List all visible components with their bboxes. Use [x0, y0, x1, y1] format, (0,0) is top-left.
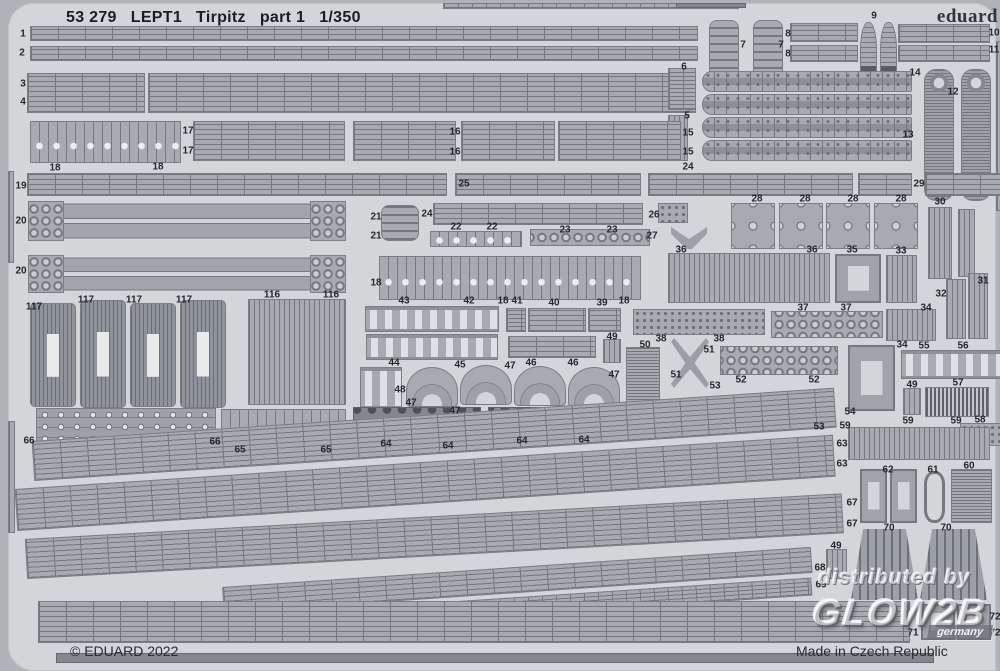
part-number-label: 28: [751, 194, 762, 205]
part-number-label: 54: [844, 407, 855, 418]
part-number-label: 64: [442, 441, 453, 452]
pe-part-shape: [28, 255, 64, 293]
pe-part-shape: [702, 117, 912, 138]
part-number-label: 60: [963, 461, 974, 472]
pe-part-shape: [28, 255, 346, 293]
part-number-label: 47: [449, 406, 460, 417]
pe-part-shape: [898, 45, 990, 62]
part-number-label: 23: [559, 225, 570, 236]
pe-part-shape: [658, 203, 688, 223]
part-number-label: 16: [449, 127, 460, 138]
part-number-label: 21: [370, 212, 381, 223]
part-number-label: 28: [799, 194, 810, 205]
part-number-label: 52: [808, 375, 819, 386]
part-number-label: 49: [606, 332, 617, 343]
scale-label: 1/350: [319, 9, 361, 26]
part-number-label: 72: [989, 628, 1000, 639]
part-number-label: 20: [15, 216, 26, 227]
pe-part-shape: [668, 68, 696, 110]
part-number-label: 65: [234, 445, 245, 456]
part-number-label: 3: [20, 79, 26, 90]
part-number-label: 56: [957, 341, 968, 352]
pe-part-shape: [676, 3, 746, 8]
part-number-label: 26: [648, 210, 659, 221]
part-number-label: 25: [458, 179, 469, 190]
pe-part-shape: [506, 308, 526, 332]
pe-part-shape: [702, 94, 912, 115]
pe-part-shape: [951, 469, 992, 523]
part-number-label: 33: [895, 246, 906, 257]
pe-part-shape: [558, 121, 681, 161]
pe-part-shape: [433, 203, 643, 225]
pe-part-shape: [874, 203, 918, 249]
eduard-logo: eduard: [906, 6, 998, 28]
part-number-label: 6: [681, 62, 687, 73]
part-number-label: 32: [935, 289, 946, 300]
pe-part-shape: [826, 549, 847, 579]
part-number-label: 2: [19, 48, 25, 59]
part-number-label: 117: [26, 302, 42, 313]
part-number-label: 61: [927, 465, 938, 476]
part-number-label: 117: [176, 295, 192, 306]
part-number-label: 22: [486, 222, 497, 233]
part-number-label: 20: [15, 266, 26, 277]
part-number-label: 57: [952, 378, 963, 389]
parts-layer: 1234181817171616151565778891011141213192…: [8, 3, 996, 671]
pe-part-shape: [702, 71, 912, 92]
part-number-label: 11: [989, 45, 1000, 56]
pe-part-shape: [193, 121, 345, 161]
part-number-label: 21: [370, 231, 381, 242]
part-number-label: 64: [516, 436, 527, 447]
part-number-label: 41: [511, 296, 522, 307]
pe-part-shape: [771, 311, 883, 338]
part-number-label: 55: [918, 341, 929, 352]
part-number-label: 40: [548, 298, 559, 309]
plate-code: LEPT1: [131, 9, 182, 26]
part-number-label: 62: [882, 465, 893, 476]
pe-part-shape: [901, 350, 1000, 379]
pe-part-shape: [946, 279, 966, 339]
part-number-label: 69: [815, 580, 826, 591]
part-number-label: 37: [840, 303, 851, 314]
part-number-label: 29: [913, 179, 924, 190]
part-number-label: 49: [830, 541, 841, 552]
pe-part-shape: [921, 604, 955, 640]
part-number-label: 44: [388, 358, 399, 369]
pe-part-shape: [702, 140, 912, 161]
part-number-label: 66: [209, 437, 220, 448]
pe-part-shape: [848, 345, 895, 411]
pe-part-shape: [8, 171, 14, 263]
part-number-label: 51: [703, 345, 714, 356]
pe-part-shape: [886, 309, 936, 341]
pe-part-shape: [30, 121, 181, 163]
part-number-label: 22: [450, 222, 461, 233]
part-number-label: 46: [525, 358, 536, 369]
pe-part-shape: [668, 253, 830, 303]
pe-part-shape: [779, 203, 823, 249]
part-number-label: 7: [740, 40, 746, 51]
pe-part-shape: [924, 471, 945, 523]
copyright-notice: © EDUARD 2022: [70, 643, 178, 659]
part-number-label: 30: [934, 197, 945, 208]
part-number-label: 18: [49, 163, 60, 174]
part-number-label: 70: [883, 523, 894, 534]
part-number-label: 53: [709, 381, 720, 392]
part-number-label: 16: [449, 147, 460, 158]
part-number-label: 59: [950, 416, 961, 427]
pe-part-shape: [366, 334, 498, 360]
part-number-label: 38: [713, 334, 724, 345]
pe-part-shape: [28, 201, 64, 241]
part-number-label: 49: [906, 380, 917, 391]
part-number-label: 24: [421, 209, 432, 220]
pe-part-shape: [455, 173, 641, 196]
pe-part-shape: [928, 207, 952, 279]
part-label: part 1: [260, 9, 305, 26]
part-number-label: 43: [398, 296, 409, 307]
pe-part-shape: [461, 121, 555, 161]
part-number-label: 116: [323, 290, 339, 301]
part-number-label: 35: [846, 245, 857, 256]
part-number-label: 10: [988, 28, 999, 39]
part-number-label: 59: [839, 421, 850, 432]
part-number-label: 8: [785, 49, 791, 60]
pe-part-shape: [353, 121, 456, 161]
part-number-label: 71: [907, 628, 918, 639]
part-number-label: 14: [909, 68, 920, 79]
sheet-header: 53 279LEPT1Tirpitzpart 11/350: [66, 9, 375, 27]
pe-part-shape: [28, 201, 346, 241]
pe-part-shape: [588, 308, 621, 332]
part-number-label: 52: [735, 375, 746, 386]
pe-part-shape: [430, 231, 522, 247]
part-number-label: 45: [454, 360, 465, 371]
part-number-label: 36: [675, 245, 686, 256]
part-number-label: 50: [639, 340, 650, 351]
part-number-label: 47: [504, 361, 515, 372]
part-number-label: 18: [370, 278, 381, 289]
pe-part-shape: [890, 469, 917, 523]
part-number-label: 28: [847, 194, 858, 205]
part-number-label: 18: [618, 296, 629, 307]
pe-part-shape: [925, 387, 989, 417]
part-number-label: 27: [646, 231, 657, 242]
part-number-label: 13: [902, 130, 913, 141]
part-number-label: 23: [606, 225, 617, 236]
pe-part-shape: [848, 427, 990, 460]
part-number-label: 31: [977, 276, 988, 287]
pe-part-shape: [925, 173, 1000, 196]
part-number-label: 12: [947, 87, 958, 98]
part-number-label: 64: [578, 435, 589, 446]
part-number-label: 68: [814, 563, 825, 574]
part-number-label: 70: [940, 523, 951, 534]
part-number-label: 48: [394, 385, 405, 396]
pe-part-shape: [30, 26, 698, 41]
part-number-label: 37: [797, 303, 808, 314]
part-number-label: 46: [567, 358, 578, 369]
pe-part-shape: [30, 46, 698, 61]
part-number-label: 4: [20, 97, 26, 108]
part-number-label: 117: [126, 295, 142, 306]
kit-name: Tirpitz: [196, 9, 246, 26]
part-number-label: 7: [778, 40, 784, 51]
part-number-label: 42: [463, 296, 474, 307]
part-number-label: 65: [320, 445, 331, 456]
pe-part-shape: [130, 303, 176, 407]
pe-part-shape: [958, 209, 975, 277]
part-number-label: 18: [497, 296, 508, 307]
pe-part-shape: [27, 173, 447, 196]
pe-fret-sheet: 1234181817171616151565778891011141213192…: [8, 3, 996, 671]
part-number-label: 17: [182, 146, 193, 157]
pe-part-shape: [379, 256, 641, 300]
pe-part-shape: [790, 23, 858, 42]
catalog-number: 53 279: [66, 9, 117, 26]
pe-part-shape: [148, 73, 696, 113]
part-number-label: 67: [846, 519, 857, 530]
part-number-label: 117: [78, 295, 94, 306]
pe-part-shape: [528, 308, 586, 332]
pe-part-shape: [835, 254, 881, 303]
part-number-label: 8: [785, 29, 791, 40]
pe-part-shape: [38, 601, 910, 643]
part-number-label: 1: [20, 29, 26, 40]
pe-part-shape: [310, 201, 346, 241]
part-number-label: 18: [152, 162, 163, 173]
part-number-label: 64: [380, 439, 391, 450]
pe-part-shape: [80, 300, 126, 408]
pe-part-shape: [514, 366, 566, 406]
part-number-label: 34: [896, 340, 907, 351]
pe-part-shape: [903, 388, 921, 415]
pe-part-shape: [860, 469, 887, 523]
pe-part-shape: [826, 203, 870, 249]
part-number-label: 72: [989, 612, 1000, 623]
pe-part-shape: [365, 306, 499, 332]
part-number-label: 67: [846, 498, 857, 509]
pe-part-shape: [790, 45, 858, 62]
part-number-label: 63: [836, 439, 847, 450]
pe-part-shape: [886, 255, 917, 303]
made-in-label: Made in Czech Republic: [796, 643, 996, 659]
part-number-label: 38: [655, 334, 666, 345]
pe-part-shape: [8, 421, 15, 533]
part-number-label: 66: [23, 436, 34, 447]
part-number-label: 59: [902, 416, 913, 427]
pe-part-shape: [508, 336, 596, 358]
pe-part-shape: [530, 229, 650, 246]
pe-part-shape: [920, 529, 987, 600]
part-number-label: 47: [608, 370, 619, 381]
part-number-label: 36: [806, 245, 817, 256]
pe-part-shape: [180, 300, 226, 408]
part-number-label: 17: [182, 126, 193, 137]
part-number-label: 34: [920, 303, 931, 314]
pe-part-shape: [709, 20, 739, 78]
pe-part-shape: [27, 73, 145, 113]
part-number-label: 19: [15, 181, 26, 192]
part-number-label: 5: [684, 111, 690, 122]
pe-part-shape: [30, 303, 76, 407]
pe-part-shape: [633, 309, 765, 335]
part-number-label: 28: [895, 194, 906, 205]
pe-part-shape: [248, 299, 346, 405]
pe-part-shape: [720, 346, 838, 375]
part-number-label: 15: [682, 147, 693, 158]
pe-part-shape: [310, 255, 346, 293]
page-root: { "header": { "catalog_number": "53 279"…: [0, 0, 1000, 662]
pe-part-shape: [731, 203, 775, 249]
part-number-label: 15: [682, 128, 693, 139]
part-number-label: 53: [813, 422, 824, 433]
part-number-label: 63: [836, 459, 847, 470]
pe-part-shape: [851, 529, 918, 600]
part-number-label: 9: [871, 11, 877, 22]
pe-part-shape: [603, 339, 621, 363]
pe-part-shape: [381, 205, 419, 241]
part-number-label: 39: [596, 298, 607, 309]
part-number-label: 116: [264, 290, 280, 301]
part-number-label: 24: [682, 162, 693, 173]
part-number-label: 58: [974, 415, 985, 426]
part-number-label: 51: [670, 370, 681, 381]
part-number-label: 47: [405, 398, 416, 409]
pe-part-shape: [957, 604, 991, 640]
